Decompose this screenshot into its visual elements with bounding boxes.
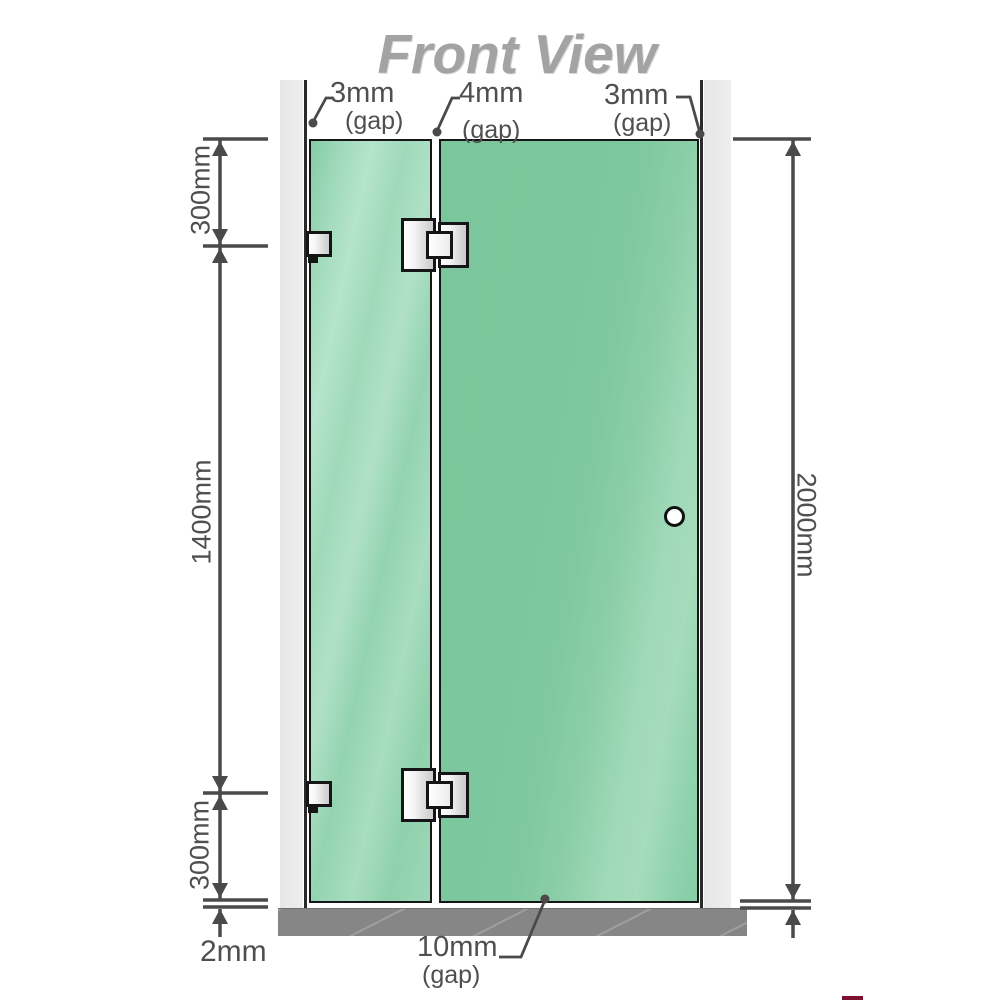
gap-value: 10mm xyxy=(417,933,498,963)
gap-value: 3mm xyxy=(330,79,403,109)
floor-gap-label: 2mm xyxy=(200,935,267,969)
front-view-diagram: Front View xyxy=(0,0,1000,1000)
gap-unit: (gap) xyxy=(613,111,671,137)
dimension-label-left-middle: 1400mm xyxy=(187,459,218,564)
gap-label-top-left: 3mm (gap) xyxy=(330,79,403,134)
gap-value: 3mm xyxy=(604,81,671,111)
dimension-label-right-total: 2000mm xyxy=(791,472,822,577)
gap-unit: (gap) xyxy=(462,118,523,144)
leader-lines xyxy=(313,97,700,957)
gap-unit: (gap) xyxy=(422,963,498,989)
gap-value: 4mm xyxy=(459,79,523,109)
gap-unit: (gap) xyxy=(345,109,403,135)
leader-dots xyxy=(309,119,705,904)
watermark-fragment xyxy=(842,996,863,1000)
dimension-lines xyxy=(0,0,1000,1000)
dimension-label-left-top: 300mm xyxy=(186,145,217,235)
gap-label-top-middle: 4mm (gap) xyxy=(459,79,523,143)
dimension-label-left-bottom: 300mm xyxy=(185,800,216,890)
gap-label-bottom: 10mm (gap) xyxy=(417,933,498,988)
gap-label-top-right: 3mm (gap) xyxy=(604,81,671,136)
